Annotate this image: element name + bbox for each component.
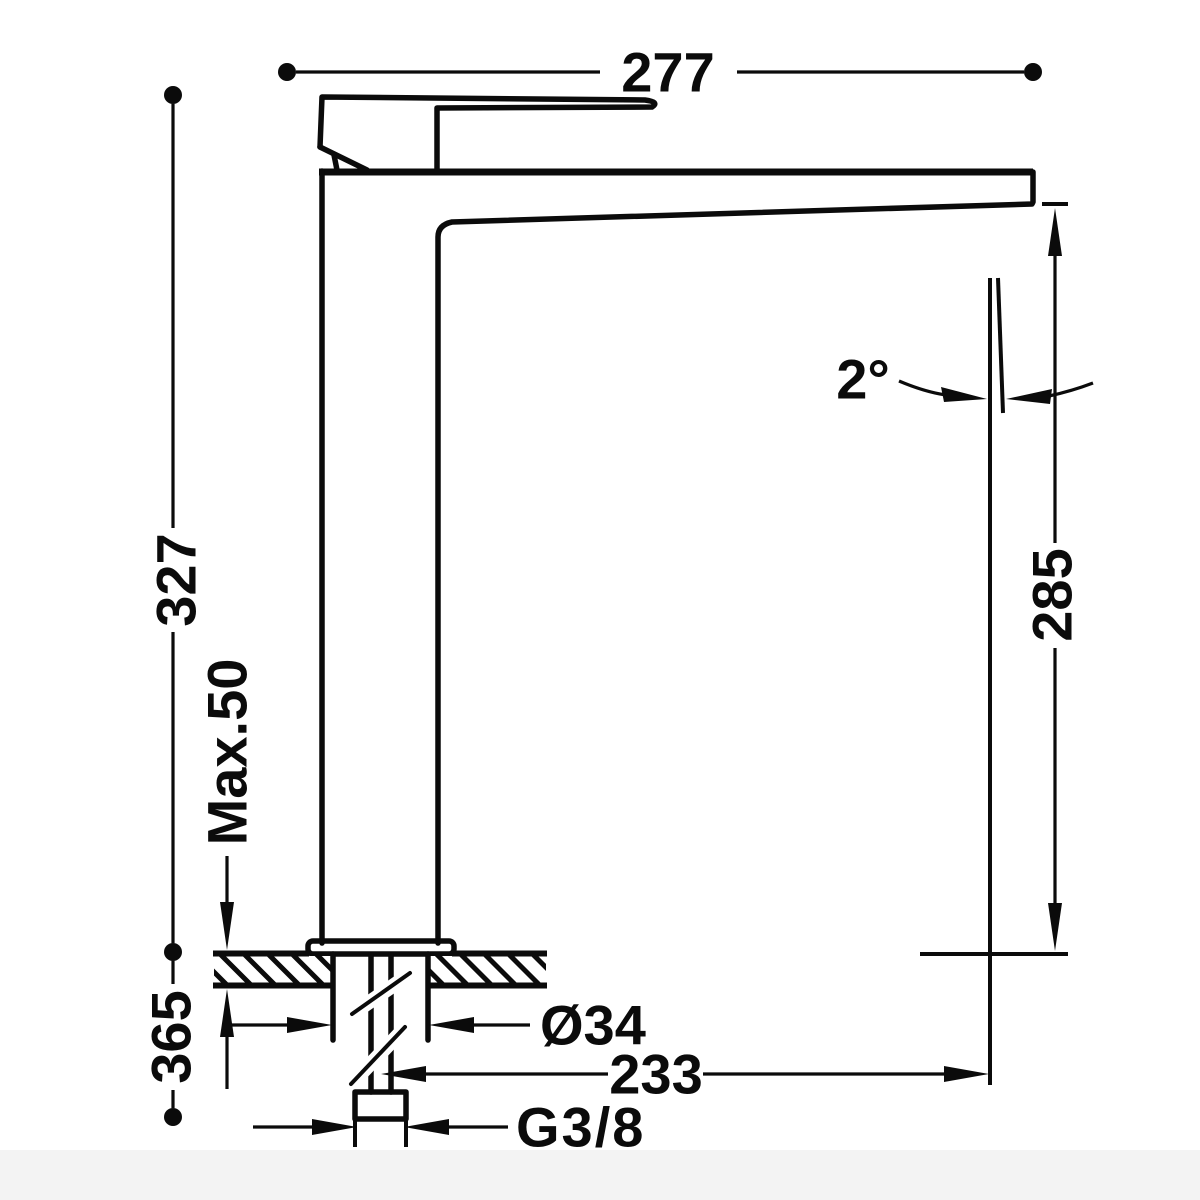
dim-365-label: 365 xyxy=(140,990,203,1083)
deck-hatch-left xyxy=(214,956,332,984)
dim-365-bottom-dot xyxy=(164,1108,182,1126)
dim-285-label: 285 xyxy=(1021,548,1084,641)
dim-277-left-dot xyxy=(278,63,296,81)
dim-277-right-dot xyxy=(1024,63,1042,81)
dim-277-label: 277 xyxy=(621,41,714,104)
dim-327-label: 327 xyxy=(145,533,208,626)
deck-hatch-right xyxy=(429,956,546,984)
dim-max50-label: Max.50 xyxy=(196,659,259,846)
lever-pivot-line xyxy=(334,155,337,170)
faucet-technical-drawing: 277 327 365 Max.50 Ø34 xyxy=(0,0,1200,1200)
dim-327-top-dot xyxy=(164,86,182,104)
dim-g38-label: G3/8 xyxy=(516,1096,645,1159)
technical-drawing-page: 277 327 365 Max.50 Ø34 xyxy=(0,0,1200,1200)
dim-angle-label: 2° xyxy=(836,348,890,411)
dim-327-bottom-dot xyxy=(164,943,182,961)
